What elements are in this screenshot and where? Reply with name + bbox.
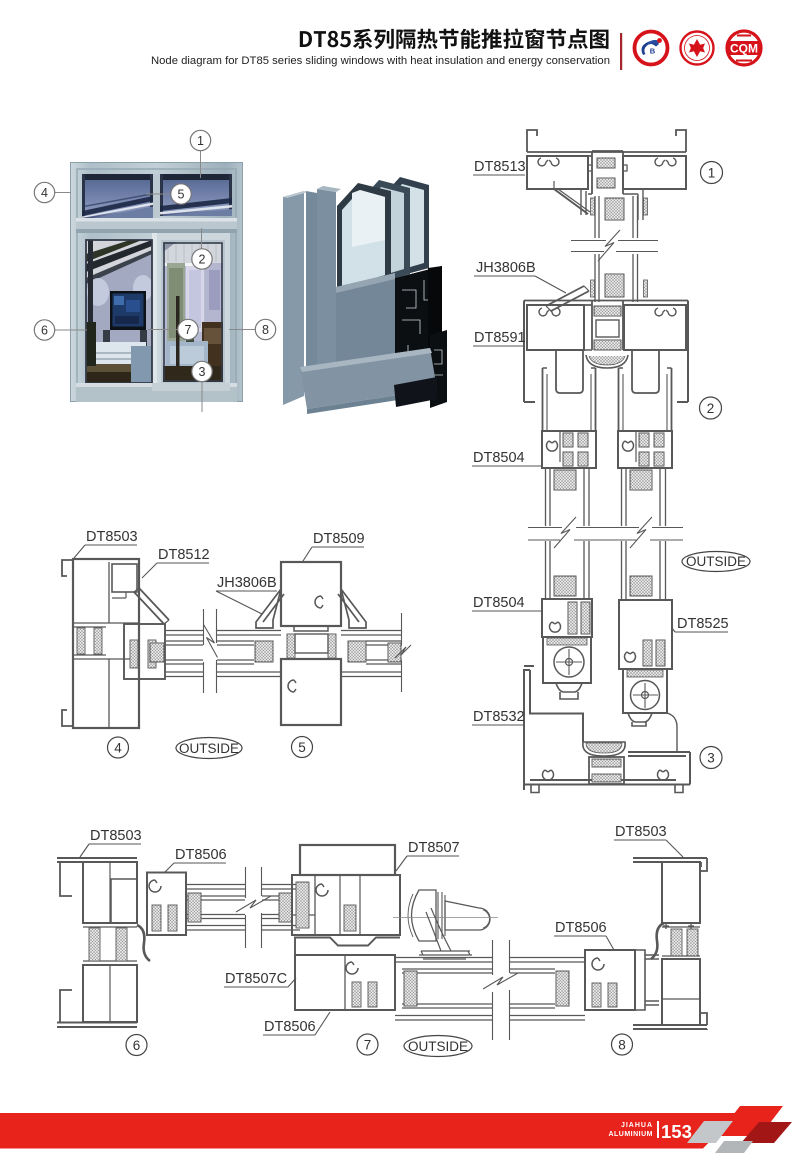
svg-text:8: 8 [262, 323, 269, 337]
svg-text:DT8532: DT8532 [473, 709, 525, 725]
svg-text:DT8506: DT8506 [175, 847, 227, 863]
svg-text:JH3806B: JH3806B [476, 260, 536, 276]
svg-text:DT8506: DT8506 [264, 1019, 316, 1035]
svg-text:DT8512: DT8512 [158, 547, 210, 563]
svg-text:4: 4 [114, 741, 122, 756]
svg-text:3: 3 [199, 365, 206, 379]
svg-text:153: 153 [661, 1121, 692, 1142]
svg-text:2: 2 [199, 253, 206, 267]
svg-text:DT8507C: DT8507C [225, 971, 287, 987]
svg-text:6: 6 [133, 1038, 141, 1053]
svg-text:3: 3 [707, 751, 715, 766]
svg-text:7: 7 [185, 323, 192, 337]
svg-text:8: 8 [618, 1038, 626, 1053]
svg-text:DT8503: DT8503 [90, 828, 142, 844]
svg-text:OUTSIDE: OUTSIDE [686, 554, 746, 569]
svg-text:DT8506: DT8506 [555, 920, 607, 936]
svg-text:ALUMINIUM: ALUMINIUM [608, 1131, 653, 1138]
svg-text:DT8525: DT8525 [677, 616, 729, 632]
svg-text:7: 7 [364, 1038, 372, 1053]
svg-text:2: 2 [707, 401, 715, 416]
svg-text:5: 5 [298, 740, 306, 755]
svg-text:1: 1 [708, 166, 716, 181]
svg-text:DT8509: DT8509 [313, 531, 365, 547]
svg-text:1: 1 [197, 134, 204, 148]
svg-text:Node diagram for DT85 series s: Node diagram for DT85 series sliding win… [151, 55, 610, 67]
svg-text:DT8503: DT8503 [615, 824, 667, 840]
svg-text:DT8507: DT8507 [408, 840, 460, 856]
svg-text:DT8591: DT8591 [474, 330, 526, 346]
svg-text:JIAHUA: JIAHUA [621, 1122, 653, 1129]
svg-text:B: B [650, 47, 656, 56]
svg-text:6: 6 [41, 324, 48, 338]
svg-text:DT8503: DT8503 [86, 529, 138, 545]
svg-text:DT8504: DT8504 [473, 595, 525, 611]
svg-text:OUTSIDE: OUTSIDE [408, 1039, 468, 1054]
svg-text:DT8513: DT8513 [474, 159, 526, 175]
svg-text:DT8504: DT8504 [473, 450, 525, 466]
svg-text:4: 4 [41, 186, 48, 200]
svg-text:OUTSIDE: OUTSIDE [179, 741, 239, 756]
svg-text:JH3806B: JH3806B [217, 575, 277, 591]
svg-text:CQM: CQM [730, 42, 758, 56]
svg-text:5: 5 [178, 188, 185, 202]
